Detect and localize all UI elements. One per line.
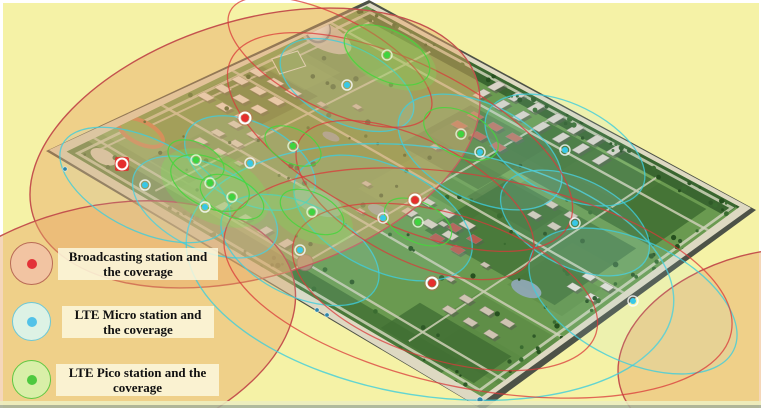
micro-station-small-dot	[63, 167, 67, 171]
micro-station-dot	[562, 147, 568, 153]
micro-station-dot	[297, 247, 303, 253]
pico-station-dot	[229, 194, 235, 200]
broadcast-station-dot	[241, 114, 249, 122]
figure-canvas: Broadcasting station and the coverage LT…	[0, 0, 761, 408]
broadcast-station-dot	[118, 160, 126, 168]
pico-station-dot	[207, 180, 213, 186]
pico-station-dot	[458, 131, 464, 137]
pico-station-dot	[309, 209, 315, 215]
micro-station-dot	[477, 149, 483, 155]
micro-station-dot	[247, 160, 253, 166]
broadcast-station-dot	[411, 196, 419, 204]
broadcast-station-dot	[428, 279, 436, 287]
bottom-strip-light	[0, 401, 761, 405]
pico-station-dot	[193, 157, 199, 163]
pico-station-dot	[384, 52, 390, 58]
micro-station-dot	[142, 182, 148, 188]
micro-station-dot	[630, 298, 636, 304]
micro-station-small-dot	[325, 313, 329, 317]
pico-station-dot	[415, 219, 421, 225]
pico-station-dot	[290, 143, 296, 149]
micro-station-dot	[202, 204, 208, 210]
micro-station-small-dot	[315, 308, 319, 312]
micro-station-dot	[380, 215, 386, 221]
micro-station-dot	[572, 220, 578, 226]
micro-station-dot	[344, 82, 350, 88]
campus-coverage-map	[0, 0, 761, 408]
